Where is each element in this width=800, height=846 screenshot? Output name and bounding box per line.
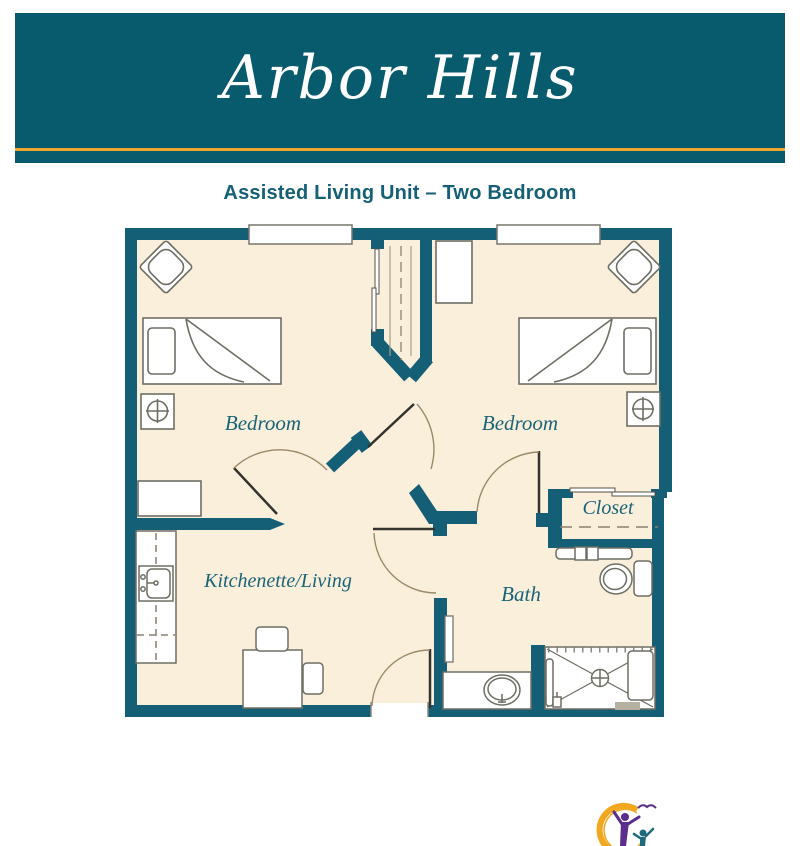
pillow [148, 328, 175, 374]
dining-table [243, 650, 302, 708]
pillow [624, 328, 651, 374]
logo-person-purple [614, 812, 639, 846]
floor-area [131, 234, 664, 711]
label-bath: Bath [501, 582, 541, 606]
logo-bird [638, 805, 656, 808]
window-left [249, 225, 352, 244]
twin-bed [519, 318, 656, 384]
shower-bench [628, 651, 653, 700]
label-bedroom-left: Bedroom [225, 411, 301, 435]
shower-threshold [615, 702, 640, 710]
label-bedroom-right: Bedroom [482, 411, 558, 435]
flyer-page: Arbor Hills Assisted Living Unit – Two B… [0, 0, 800, 846]
bath-door-panel [445, 616, 453, 662]
unit-subtitle: Assisted Living Unit – Two Bedroom [0, 182, 800, 205]
page-title: Arbor Hills [15, 43, 785, 113]
sliding-door-panel [612, 492, 655, 496]
logo-person-teal [634, 829, 653, 846]
vanity-sink [443, 672, 531, 709]
label-kitchenette-living: Kitchenette/Living [203, 570, 352, 592]
shower [545, 647, 655, 710]
banner: Arbor Hills [15, 13, 785, 163]
sliding-door-panel [570, 488, 615, 492]
dresser [138, 481, 201, 516]
kitchen-sink [139, 566, 173, 601]
nightstand-lamp [627, 392, 660, 426]
sliding-door-panel [372, 288, 376, 332]
shower-control [553, 697, 561, 707]
label-closet: Closet [582, 497, 634, 519]
floor-plan: Bedroom Bedroom Kitchenette/Living Bath … [118, 218, 684, 722]
gold-accent-line [15, 148, 785, 151]
dining-chair [256, 627, 288, 651]
twin-bed [143, 318, 281, 384]
shower-entry-bar [546, 659, 553, 706]
wardrobe [436, 241, 472, 303]
sliding-door-panel [375, 249, 379, 294]
arbor-hills-logo-mark [585, 800, 685, 846]
window-right [497, 225, 600, 244]
dining-chair [303, 663, 323, 694]
nightstand-lamp [141, 394, 174, 429]
